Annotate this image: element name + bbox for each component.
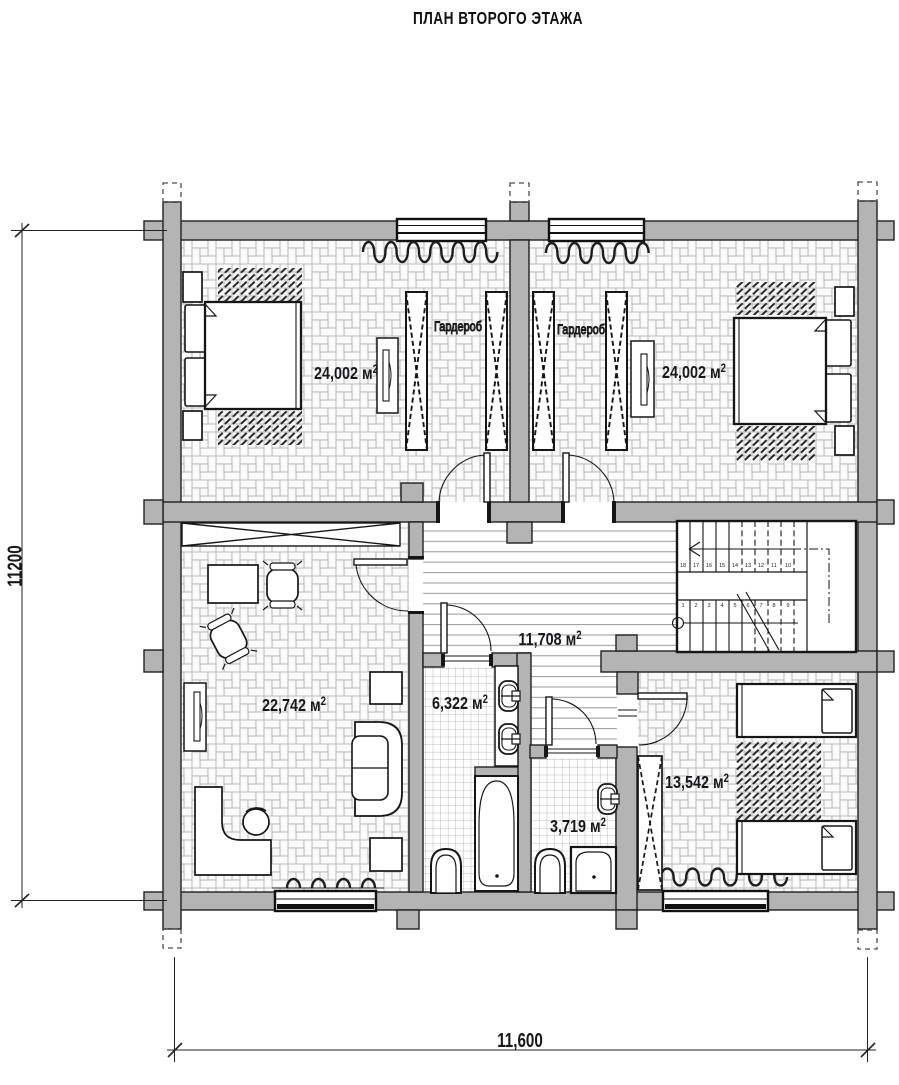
svg-text:13: 13 — [745, 563, 751, 569]
svg-text:1: 1 — [681, 603, 684, 609]
svg-text:13,542 м2: 13,542 м2 — [665, 772, 729, 792]
svg-text:16: 16 — [706, 563, 712, 569]
svg-text:11,708 м2: 11,708 м2 — [518, 629, 581, 649]
svg-text:24,002 м2: 24,002 м2 — [314, 363, 378, 383]
svg-text:3,719 м2: 3,719 м2 — [550, 816, 606, 836]
svg-text:6: 6 — [746, 603, 749, 609]
svg-text:9: 9 — [786, 603, 789, 609]
svg-text:22,742 м2: 22,742 м2 — [262, 695, 326, 715]
svg-text:14: 14 — [732, 563, 738, 569]
svg-text:2: 2 — [694, 603, 697, 609]
svg-text:Гардероб: Гардероб — [434, 319, 482, 335]
svg-text:3: 3 — [707, 603, 710, 609]
svg-text:7: 7 — [759, 603, 762, 609]
svg-text:11200: 11200 — [3, 545, 26, 587]
svg-text:4: 4 — [720, 603, 723, 609]
svg-text:15: 15 — [719, 563, 725, 569]
svg-text:ПЛАН ВТОРОГО ЭТАЖА: ПЛАН ВТОРОГО ЭТАЖА — [413, 9, 583, 28]
svg-text:6,322 м2: 6,322 м2 — [432, 693, 488, 713]
svg-text:11: 11 — [771, 563, 777, 569]
svg-text:Гардероб: Гардероб — [557, 322, 605, 338]
svg-text:5: 5 — [733, 603, 736, 609]
svg-text:24,002 м2: 24,002 м2 — [662, 362, 726, 382]
svg-text:18: 18 — [680, 563, 686, 569]
svg-text:17: 17 — [693, 563, 699, 569]
svg-text:8: 8 — [772, 603, 775, 609]
svg-text:10: 10 — [785, 563, 791, 569]
svg-text:12: 12 — [758, 563, 764, 569]
svg-text:11,600: 11,600 — [497, 1029, 543, 1052]
